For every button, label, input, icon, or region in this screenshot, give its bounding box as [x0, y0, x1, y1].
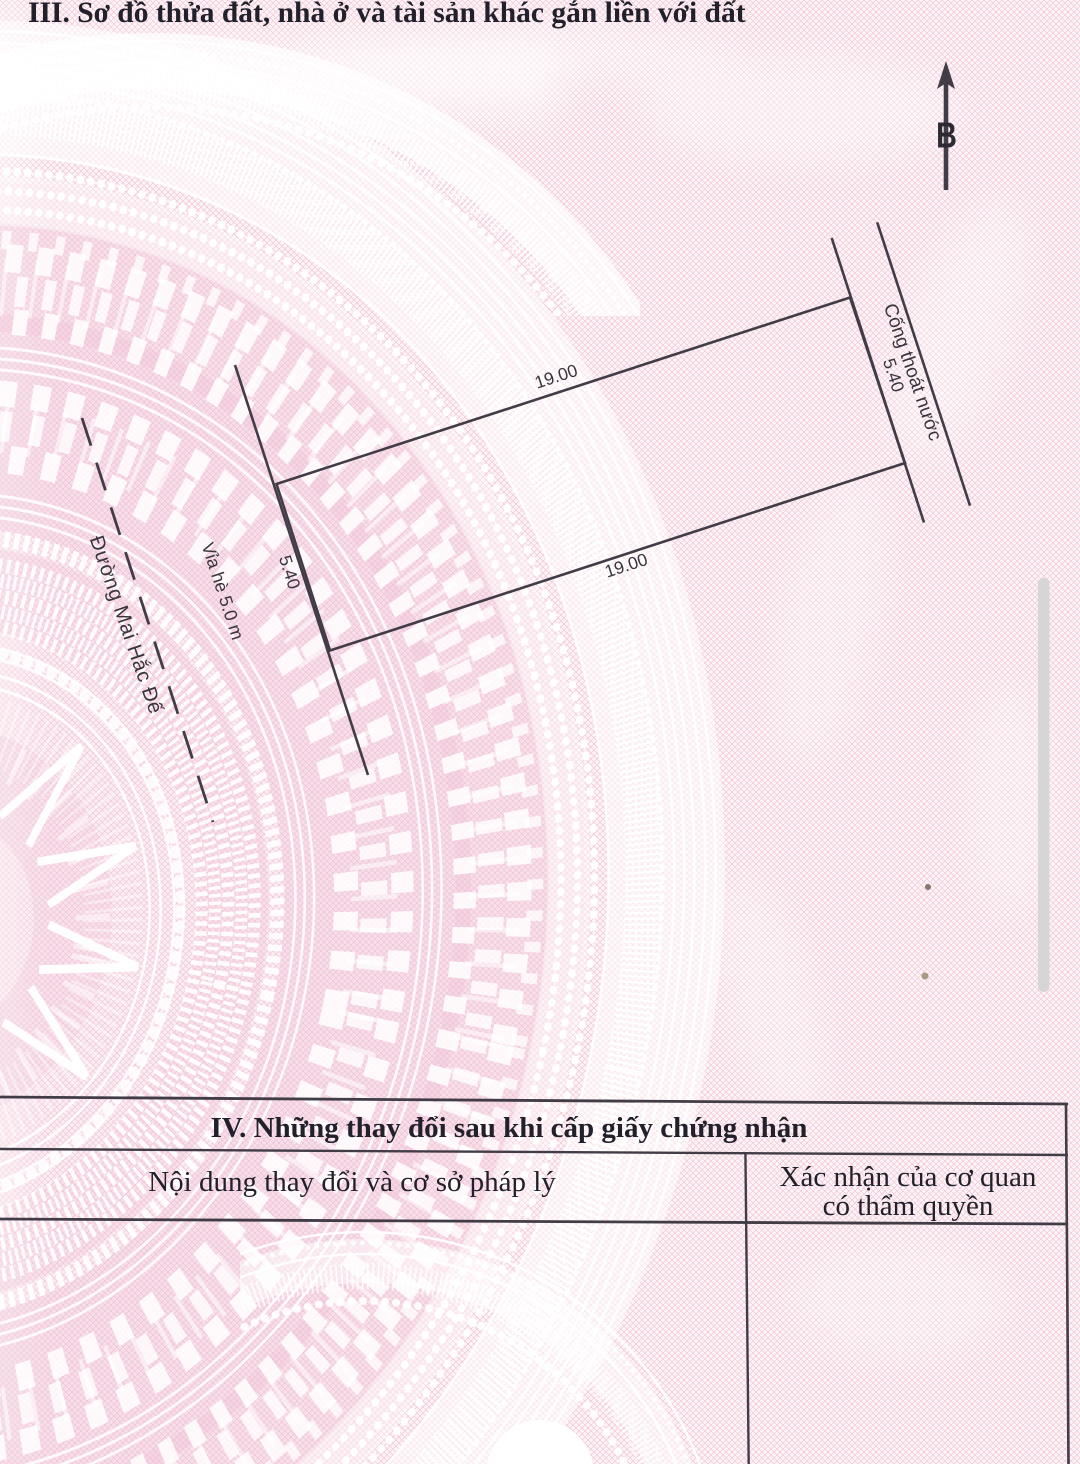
- svg-text:III. Sơ đồ thửa đất, nhà ở và: III. Sơ đồ thửa đất, nhà ở và tài sản kh…: [28, 0, 746, 29]
- svg-text:B: B: [936, 114, 957, 155]
- svg-text:có thẩm quyền: có thẩm quyền: [823, 1190, 994, 1222]
- svg-text:Nội dung thay đổi và cơ sở phá: Nội dung thay đổi và cơ sở pháp lý: [148, 1166, 556, 1198]
- svg-text:Xác nhận của cơ quan: Xác nhận của cơ quan: [780, 1161, 1037, 1193]
- svg-text:Đường Mai Hắc Đế: Đường Mai Hắc Đế: [85, 533, 168, 717]
- svg-text:IV. Những thay đổi sau khi cấp: IV. Những thay đổi sau khi cấp giấy chứn…: [211, 1112, 808, 1144]
- svg-text:19.00: 19.00: [602, 549, 650, 582]
- svg-text:Vỉa hè 5.0 m: Vỉa hè 5.0 m: [198, 540, 248, 642]
